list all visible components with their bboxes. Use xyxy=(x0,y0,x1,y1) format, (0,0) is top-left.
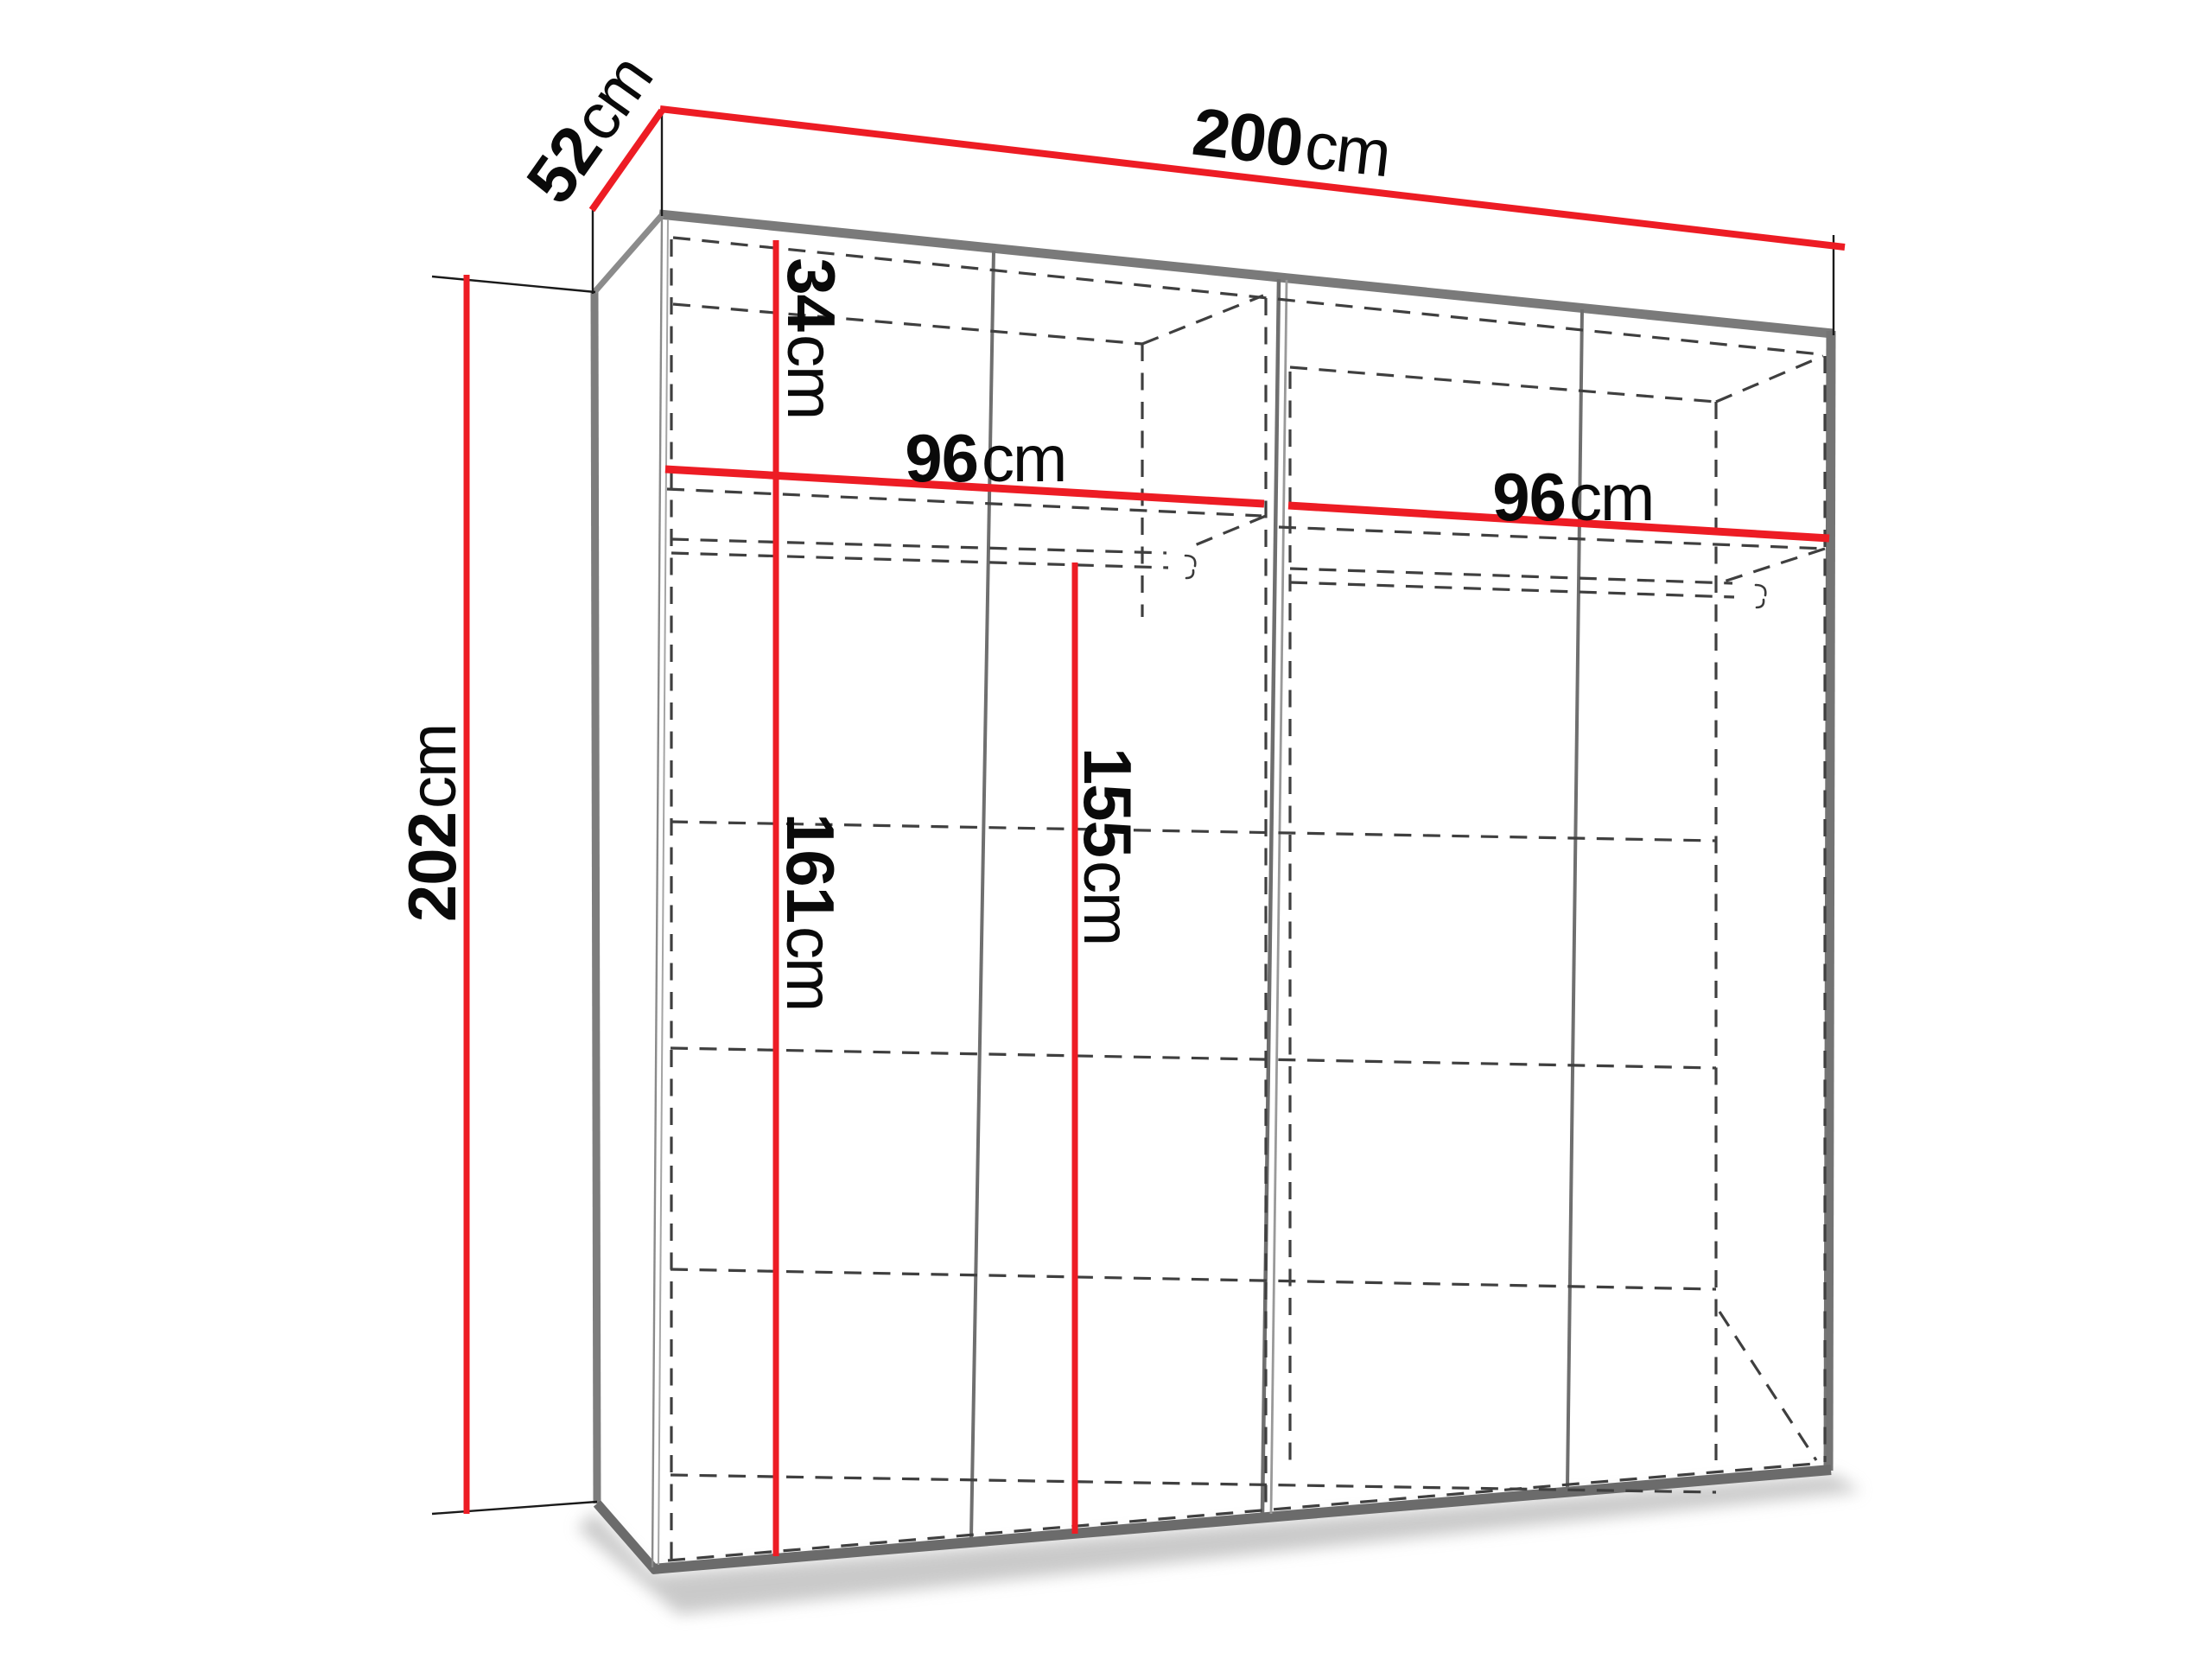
bottom-right-back-diagonal xyxy=(1719,1312,1816,1460)
dim-label-rail-height: 155 cm xyxy=(1070,747,1146,944)
dimension-labels: 52 cm 200 cm 202 cm 34 cm 96 cm 96 cm 16… xyxy=(394,41,1653,1010)
left-rail-back-diagonal xyxy=(1191,516,1266,547)
dim-label-height: 202 cm xyxy=(394,725,470,922)
dim-label-width-unit: cm xyxy=(1301,109,1393,192)
rail-bracket-left xyxy=(1185,556,1195,578)
left-back-corner-diagonal xyxy=(1142,296,1263,344)
wardrobe-dimensions-diagram: 52 cm 200 cm 202 cm 34 cm 96 cm 96 cm 16… xyxy=(0,0,2212,1659)
right-rail-hidden-line-bottom xyxy=(1290,582,1734,597)
dim-label-topshelf-unit: cm xyxy=(773,334,847,418)
center-partition-right-line xyxy=(1271,280,1287,1514)
dim-label-left-hanging-unit: cm xyxy=(772,926,846,1010)
dim-label-left-hanging: 161 cm xyxy=(772,813,849,1010)
floor-shadow xyxy=(577,1474,1861,1614)
dim-label-topshelf: 34 cm xyxy=(773,257,849,418)
dimension-lines xyxy=(467,109,1845,1556)
rail-bracket-right xyxy=(1756,585,1765,607)
dim-label-right-section-unit: cm xyxy=(1569,461,1653,535)
dim-label-height-unit: cm xyxy=(397,725,470,809)
dim-label-rail-height-value: 155 xyxy=(1070,747,1146,857)
dim-label-left-hanging-value: 161 xyxy=(772,813,849,923)
ext-line-height-bottom xyxy=(432,1502,597,1514)
right-rail-back-diagonal xyxy=(1724,549,1825,582)
dim-label-left-section-unit: cm xyxy=(982,423,1065,496)
right-edge xyxy=(1828,331,1831,1471)
side-panel-top-edge xyxy=(594,215,662,292)
left-rail-hidden-line-bottom xyxy=(671,553,1168,568)
dim-label-depth: 52 cm xyxy=(512,41,666,217)
side-panel-back-edge xyxy=(594,292,597,1503)
dim-label-left-section-value: 96 xyxy=(905,420,978,496)
shelf-hidden-line-3 xyxy=(671,1269,1716,1289)
dim-label-height-value: 202 xyxy=(394,812,470,922)
dim-label-rail-height-unit: cm xyxy=(1070,861,1143,944)
dim-label-right-section: 96 cm xyxy=(1492,459,1653,535)
left-rail-hidden-line-top xyxy=(671,539,1166,553)
right-shelf-back-hidden-line xyxy=(1290,367,1716,402)
ext-line-height-top xyxy=(432,276,595,292)
page: { "diagram": { "type": "furniture-dimens… xyxy=(0,0,2212,1659)
dim-label-topshelf-value: 34 xyxy=(773,257,849,331)
shelf-hidden-line-2 xyxy=(671,1048,1716,1068)
dim-label-width-value: 200 xyxy=(1189,93,1306,181)
right-rail-hidden-line-top xyxy=(1290,569,1732,583)
dim-label-right-section-value: 96 xyxy=(1492,459,1566,535)
left-shelf-back-hidden-line xyxy=(673,304,1142,344)
right-back-corner-diagonal xyxy=(1716,356,1823,402)
dim-label-left-section: 96 cm xyxy=(905,420,1065,496)
